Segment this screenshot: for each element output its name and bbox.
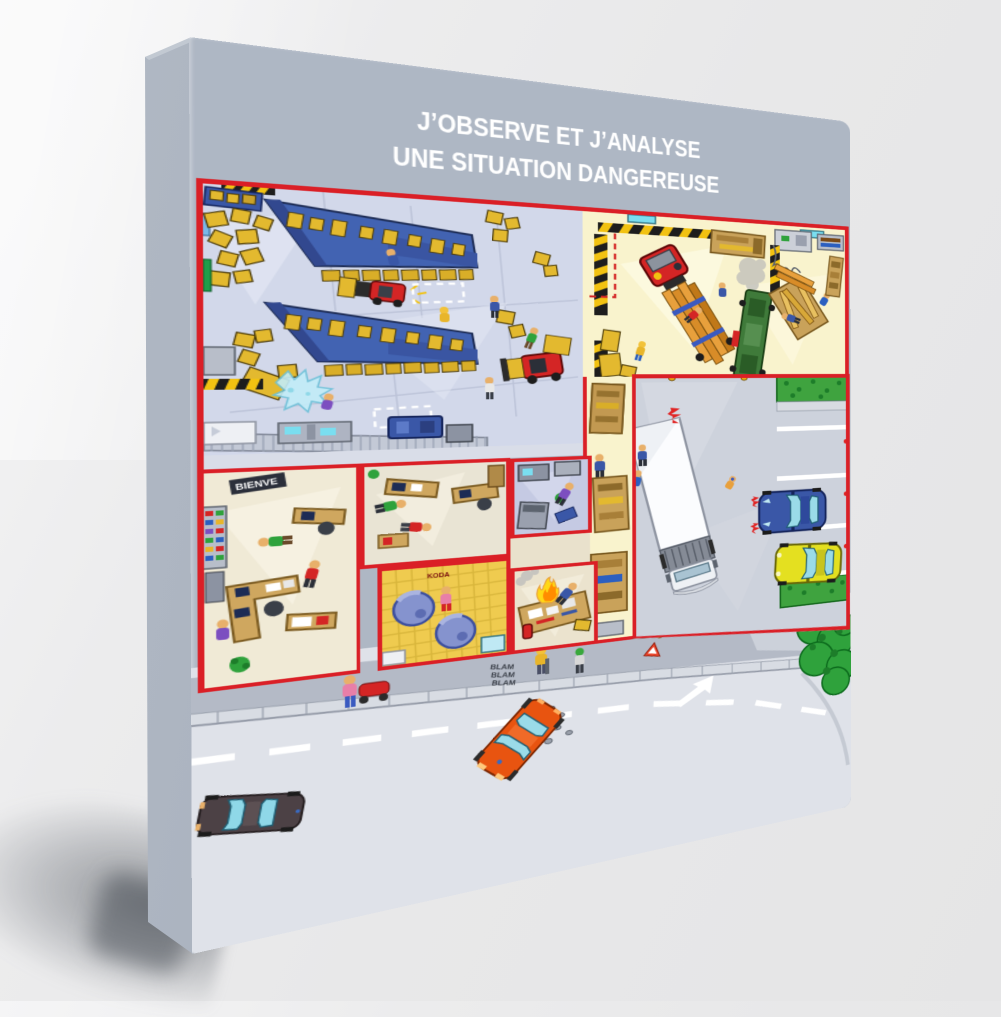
svg-text:BLAM: BLAM xyxy=(491,679,516,687)
svg-text:BLAM: BLAM xyxy=(490,671,515,679)
svg-text:KODA: KODA xyxy=(427,571,450,580)
svg-text:BLAM: BLAM xyxy=(490,663,515,671)
